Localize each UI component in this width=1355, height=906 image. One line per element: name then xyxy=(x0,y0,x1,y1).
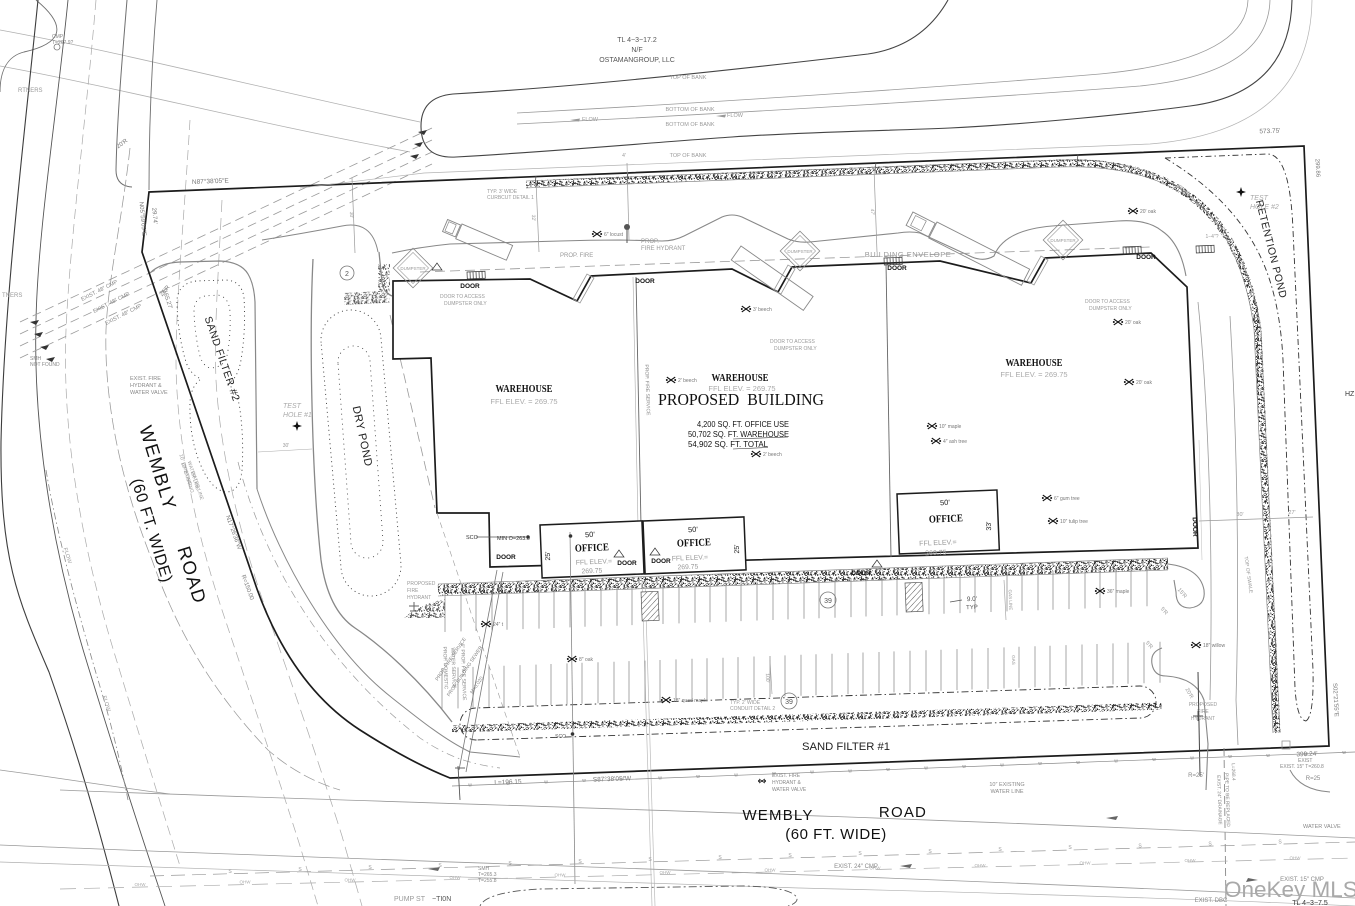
svg-text:DUMPSTER ONLY: DUMPSTER ONLY xyxy=(774,346,817,352)
svg-text:FFL ELEV.=: FFL ELEV.= xyxy=(672,554,709,562)
svg-text:1−4″?: 1−4″? xyxy=(1205,234,1218,240)
svg-text:FLOW: FLOW xyxy=(582,117,599,123)
svg-text:DOOR TO ACCESS: DOOR TO ACCESS xyxy=(1085,299,1130,305)
svg-text:DOOR: DOOR xyxy=(1136,254,1156,261)
svg-text:20' oak: 20' oak xyxy=(1136,380,1152,386)
svg-text:30': 30' xyxy=(1236,512,1243,518)
svg-text:w: w xyxy=(1190,756,1194,762)
svg-text:PROPOSED: PROPOSED xyxy=(407,581,436,587)
svg-text:CONDUIT DETAIL 2: CONDUIT DETAIL 2 xyxy=(730,706,775,712)
svg-text:FIRE: FIRE xyxy=(407,588,419,594)
svg-text:33': 33' xyxy=(986,521,993,530)
svg-text:TOP OF BANK: TOP OF BANK xyxy=(670,153,707,159)
svg-text:w: w xyxy=(582,778,586,784)
svg-text:DOOR: DOOR xyxy=(851,570,871,577)
svg-text:OHW: OHW xyxy=(1080,860,1092,865)
svg-text:269.75: 269.75 xyxy=(581,568,602,576)
svg-text:FIRE HYDRANT: FIRE HYDRANT xyxy=(641,246,686,252)
svg-text:WATER VALVE: WATER VALVE xyxy=(1303,824,1341,830)
svg-text:w: w xyxy=(962,764,966,770)
svg-text:ROAD: ROAD xyxy=(879,804,927,821)
svg-text:EXIST. FIRE: EXIST. FIRE xyxy=(130,376,161,382)
svg-text:PROP. FIRE: PROP. FIRE xyxy=(560,253,593,259)
svg-text:2' beech: 2' beech xyxy=(763,452,782,458)
svg-text:BOTTOM OF BANK: BOTTOM OF BANK xyxy=(665,107,714,113)
svg-text:HYDRANT &: HYDRANT & xyxy=(130,383,162,389)
svg-text:10″ tulip tree: 10″ tulip tree xyxy=(1060,519,1088,525)
svg-text:TEST: TEST xyxy=(283,403,302,410)
svg-text:4,200 SQ. FT. OFFICE USE: 4,200 SQ. FT. OFFICE USE xyxy=(697,420,789,429)
svg-text:OHW: OHW xyxy=(660,870,672,875)
svg-text:10″ maple: 10″ maple xyxy=(939,424,962,430)
svg-text:39: 39 xyxy=(824,598,832,605)
svg-text:PROPOSED BUILDING: PROPOSED BUILDING xyxy=(658,390,824,409)
svg-text:EXIST. 24″ CMP: EXIST. 24″ CMP xyxy=(834,864,878,870)
svg-text:WAREHOUSE: WAREHOUSE xyxy=(496,384,553,395)
svg-text:WATER VALVE: WATER VALVE xyxy=(130,390,168,396)
svg-text:2' beech: 2' beech xyxy=(678,378,697,384)
svg-text:OHW: OHW xyxy=(975,863,987,868)
svg-text:18″ willow: 18″ willow xyxy=(1203,643,1225,649)
svg-text:OHW: OHW xyxy=(765,868,777,873)
svg-text:PUMP ST: PUMP ST xyxy=(394,896,426,903)
svg-text:w: w xyxy=(468,782,472,788)
svg-text:w: w xyxy=(544,780,548,786)
svg-text:HZ D: HZ D xyxy=(1345,391,1355,398)
svg-text:OFFICE: OFFICE xyxy=(575,542,609,554)
svg-text:BOTTOM OF BANK: BOTTOM OF BANK xyxy=(665,122,714,128)
svg-text:WATER VALVE: WATER VALVE xyxy=(772,787,807,793)
svg-text:54,902 SQ. FT. TOTAL: 54,902 SQ. FT. TOTAL xyxy=(688,440,769,449)
svg-text:PROP.: PROP. xyxy=(641,239,659,245)
svg-text:OHW: OHW xyxy=(450,875,462,880)
svg-text:GAS: GAS xyxy=(1011,655,1016,665)
svg-text:w: w xyxy=(1304,751,1308,757)
svg-text:w: w xyxy=(848,768,852,774)
svg-text:HYDRANT &: HYDRANT & xyxy=(772,780,801,786)
svg-text:w: w xyxy=(506,781,510,787)
svg-text:w: w xyxy=(1342,750,1346,756)
svg-text:DUMPSTER ONLY: DUMPSTER ONLY xyxy=(1089,306,1132,312)
svg-text:R=25: R=25 xyxy=(1306,776,1321,782)
svg-text:DUMPSTER: DUMPSTER xyxy=(400,266,426,271)
svg-text:39: 39 xyxy=(785,699,793,706)
svg-text:GAS LINE: GAS LINE xyxy=(1008,589,1014,610)
svg-text:w: w xyxy=(696,774,700,780)
svg-text:8″ oak: 8″ oak xyxy=(579,657,594,663)
svg-text:FFL ELEV.=: FFL ELEV.= xyxy=(576,558,613,566)
svg-text:FFL ELEV. = 269.75: FFL ELEV. = 269.75 xyxy=(1000,370,1067,379)
svg-text:OFFICE: OFFICE xyxy=(677,537,711,549)
svg-text:w: w xyxy=(734,772,738,778)
svg-text:OHW: OHW xyxy=(1290,856,1302,861)
svg-text:w: w xyxy=(1076,760,1080,766)
svg-text:PROPOSED: PROPOSED xyxy=(1189,702,1218,708)
svg-text:50': 50' xyxy=(688,525,699,534)
svg-text:N/F: N/F xyxy=(631,47,642,54)
svg-text:9.0': 9.0' xyxy=(967,596,978,603)
svg-text:DOOR: DOOR xyxy=(651,558,671,565)
svg-text:EXIST. 15″ T=260.8: EXIST. 15″ T=260.8 xyxy=(1280,764,1324,770)
svg-text:4': 4' xyxy=(622,153,626,159)
svg-text:OHW: OHW xyxy=(240,880,252,885)
svg-text:HOLE #1: HOLE #1 xyxy=(283,412,312,419)
svg-text:TEST: TEST xyxy=(1250,195,1269,202)
svg-text:CURBCUT DETAIL 1: CURBCUT DETAIL 1 xyxy=(487,195,534,201)
svg-text:w: w xyxy=(1266,753,1270,759)
svg-text:DOOR: DOOR xyxy=(460,283,480,290)
svg-text:R=25': R=25' xyxy=(1188,773,1204,779)
svg-text:w: w xyxy=(1114,758,1118,764)
svg-text:w: w xyxy=(658,775,662,781)
svg-text:WAREHOUSE: WAREHOUSE xyxy=(712,373,769,384)
svg-text:DOOR TO ACCESS: DOOR TO ACCESS xyxy=(770,339,815,345)
svg-text:24″ t: 24″ t xyxy=(493,622,504,628)
svg-text:299.86: 299.86 xyxy=(1314,159,1321,178)
svg-text:TYP: TYP xyxy=(966,605,978,611)
svg-text:TL 4−3−17.2: TL 4−3−17.2 xyxy=(617,37,657,44)
svg-text:20' oak: 20' oak xyxy=(1125,320,1141,326)
svg-text:47': 47' xyxy=(869,209,875,216)
svg-text:100': 100' xyxy=(764,673,770,683)
svg-text:HOLE #2: HOLE #2 xyxy=(1250,204,1279,211)
svg-text:FFL ELEV. = 269.75: FFL ELEV. = 269.75 xyxy=(490,397,557,406)
svg-text:25': 25' xyxy=(734,544,741,553)
svg-text:OHW: OHW xyxy=(1185,858,1197,863)
svg-text:w: w xyxy=(810,770,814,776)
svg-text:HYDRANT: HYDRANT xyxy=(407,595,431,601)
svg-text:EXIST. DBC: EXIST. DBC xyxy=(1195,898,1228,904)
svg-text:OHW: OHW xyxy=(345,877,357,882)
svg-text:HYDRANT: HYDRANT xyxy=(1191,716,1215,722)
svg-text:269.75: 269.75 xyxy=(677,564,698,572)
svg-text:w: w xyxy=(1152,757,1156,763)
svg-text:4″ ash tree: 4″ ash tree xyxy=(943,439,967,445)
svg-text:10″ EXISTING: 10″ EXISTING xyxy=(989,782,1024,788)
svg-text:OneKey MLS: OneKey MLS xyxy=(1224,877,1355,902)
svg-text:w: w xyxy=(886,767,890,773)
svg-text:OFFICE: OFFICE xyxy=(929,513,963,525)
svg-text:OHW: OHW xyxy=(555,873,567,878)
svg-text:−TI0N: −TI0N xyxy=(432,896,451,903)
svg-text:DOOR: DOOR xyxy=(635,278,655,285)
svg-text:SCO: SCO xyxy=(555,734,566,740)
svg-text:L=268.4: L=268.4 xyxy=(1230,763,1237,781)
svg-text:WEMBLY: WEMBLY xyxy=(742,807,813,824)
svg-text:DUMPSTER: DUMPSTER xyxy=(1050,238,1076,243)
svg-text:T=255.8: T=255.8 xyxy=(478,878,497,884)
svg-text:NOT FOUND: NOT FOUND xyxy=(30,362,60,368)
svg-text:269.75: 269.75 xyxy=(925,550,947,558)
svg-text:DOOR: DOOR xyxy=(617,560,637,567)
svg-text:27': 27' xyxy=(1288,510,1295,516)
svg-text:RTNERS: RTNERS xyxy=(18,88,43,94)
svg-text:WATER LINE: WATER LINE xyxy=(990,789,1023,795)
svg-text:6″ gum tree: 6″ gum tree xyxy=(1054,496,1080,502)
svg-text:w: w xyxy=(924,765,928,771)
svg-text:S87°38'05″W: S87°38'05″W xyxy=(593,774,632,783)
svg-text:N87°38'05″E: N87°38'05″E xyxy=(192,176,230,185)
svg-text:20' oak: 20' oak xyxy=(1140,209,1156,215)
svg-text:2: 2 xyxy=(345,271,349,278)
svg-text:18″ quad maple: 18″ quad maple xyxy=(673,698,708,704)
svg-text:6″ locust: 6″ locust xyxy=(604,232,624,238)
svg-text:(60 FT. WIDE): (60 FT. WIDE) xyxy=(785,826,887,843)
svg-text:WAREHOUSE: WAREHOUSE xyxy=(1006,358,1063,369)
svg-text:3' beech: 3' beech xyxy=(753,307,772,313)
svg-text:w: w xyxy=(1038,761,1042,767)
svg-text:OHW: OHW xyxy=(135,882,147,887)
svg-text:573.75': 573.75' xyxy=(1259,128,1280,136)
svg-text:DOOR: DOOR xyxy=(887,265,907,272)
svg-text:TNERS: TNERS xyxy=(2,293,22,299)
svg-text:36″ maple: 36″ maple xyxy=(1107,589,1130,595)
svg-text:DOOR: DOOR xyxy=(496,554,516,561)
svg-text:w: w xyxy=(620,777,624,783)
svg-text:30': 30' xyxy=(348,212,354,219)
svg-text:SCO: SCO xyxy=(466,535,479,541)
svg-text:FLOW: FLOW xyxy=(727,113,744,119)
svg-text:DUMPSTER: DUMPSTER xyxy=(787,249,813,254)
svg-text:DOOR: DOOR xyxy=(1191,517,1199,537)
svg-text:32': 32' xyxy=(530,215,536,222)
svg-text:BUILDING ENVELOPE: BUILDING ENVELOPE xyxy=(865,250,951,259)
svg-text:EXIST. FIRE: EXIST. FIRE xyxy=(772,773,801,779)
svg-text:w: w xyxy=(1000,763,1004,769)
svg-text:25': 25' xyxy=(545,551,552,560)
svg-text:OSTAMANGROUP, LLC: OSTAMANGROUP, LLC xyxy=(599,57,675,64)
svg-text:30': 30' xyxy=(283,443,290,449)
svg-text:MIN O=263.0: MIN O=263.0 xyxy=(497,536,530,542)
svg-text:SAND FILTER #1: SAND FILTER #1 xyxy=(802,741,890,753)
svg-text:DOOR TO ACCESS: DOOR TO ACCESS xyxy=(440,294,485,300)
svg-text:50': 50' xyxy=(585,530,596,539)
svg-text:w: w xyxy=(1228,754,1232,760)
svg-text:TOP OF BANK: TOP OF BANK xyxy=(670,75,707,81)
svg-text:50': 50' xyxy=(940,498,951,507)
svg-text:DUMPSTER ONLY: DUMPSTER ONLY xyxy=(444,301,487,307)
